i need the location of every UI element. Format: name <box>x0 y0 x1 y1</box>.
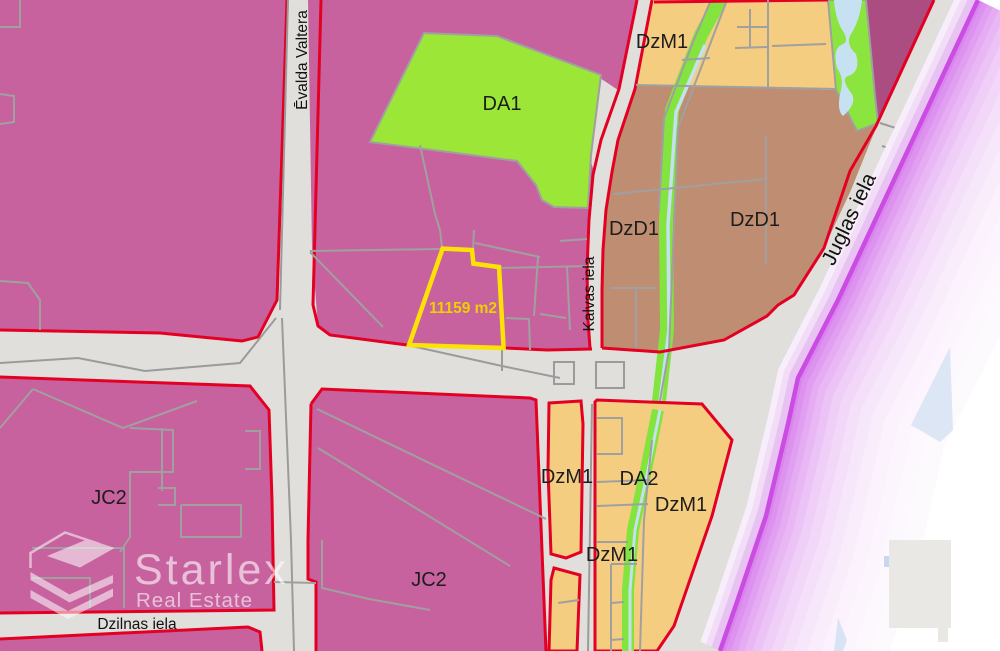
svg-text:DzM1: DzM1 <box>586 544 638 566</box>
svg-text:DA2: DA2 <box>620 468 659 490</box>
svg-text:Real Estate: Real Estate <box>136 589 253 612</box>
svg-text:DzM1: DzM1 <box>636 31 688 53</box>
svg-text:DzD1: DzD1 <box>609 218 659 240</box>
svg-text:Ēvalda Valtera: Ēvalda Valtera <box>294 10 311 110</box>
svg-text:11159 m2: 11159 m2 <box>429 300 497 317</box>
svg-text:Starlex: Starlex <box>134 546 289 594</box>
svg-text:DA1: DA1 <box>483 93 522 115</box>
svg-text:JC2: JC2 <box>91 487 127 509</box>
svg-text:Dzilnas iela: Dzilnas iela <box>97 616 177 633</box>
svg-text:JC2: JC2 <box>411 569 447 591</box>
svg-text:Kalvas iela: Kalvas iela <box>581 256 598 331</box>
svg-text:DzM1: DzM1 <box>655 494 707 516</box>
svg-text:DzM1: DzM1 <box>541 466 593 488</box>
svg-text:DzD1: DzD1 <box>730 209 780 231</box>
